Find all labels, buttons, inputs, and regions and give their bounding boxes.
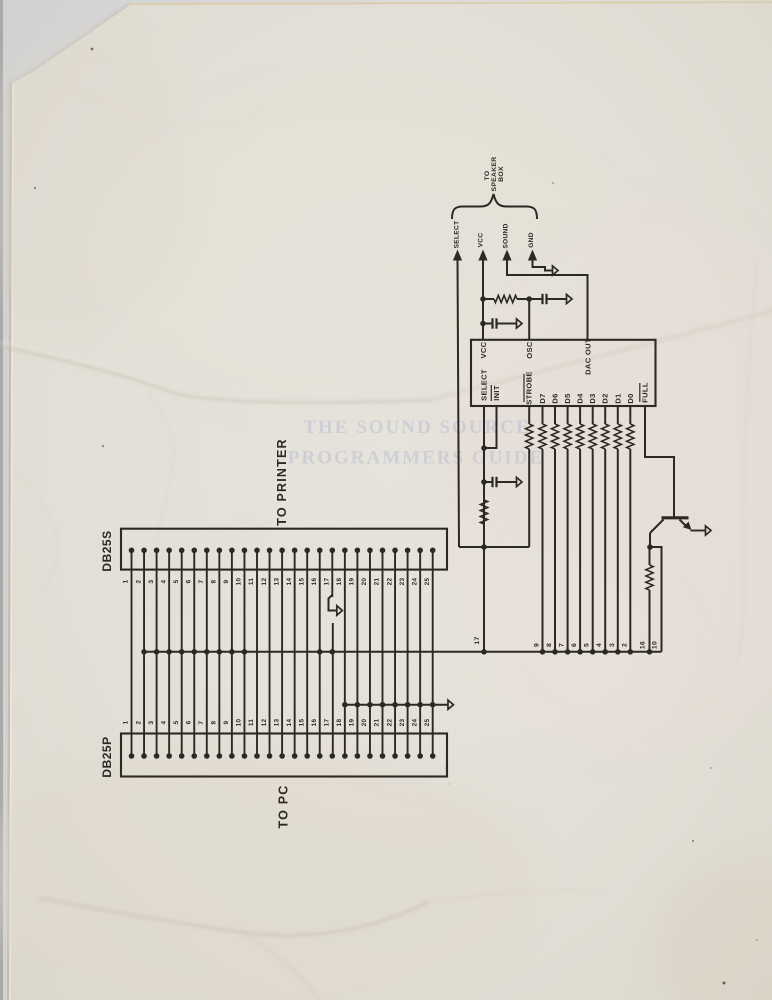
- svg-text:5: 5: [173, 720, 180, 724]
- svg-text:24: 24: [411, 719, 418, 727]
- svg-text:18: 18: [336, 719, 343, 727]
- svg-text:17: 17: [324, 719, 331, 727]
- svg-text:22: 22: [386, 578, 393, 586]
- svg-text:11: 11: [248, 578, 255, 586]
- svg-text:FULL: FULL: [641, 382, 650, 403]
- svg-text:8: 8: [211, 579, 218, 583]
- svg-text:D5: D5: [563, 393, 572, 404]
- svg-text:DAC OUT: DAC OUT: [584, 338, 593, 375]
- svg-text:18: 18: [336, 578, 343, 586]
- svg-text:17: 17: [324, 578, 331, 586]
- svg-text:15: 15: [298, 578, 305, 586]
- svg-text:14: 14: [286, 578, 293, 586]
- svg-text:7: 7: [559, 643, 566, 647]
- svg-text:15: 15: [298, 719, 305, 727]
- svg-text:6: 6: [571, 643, 578, 647]
- svg-text:8: 8: [211, 720, 218, 724]
- svg-text:4: 4: [160, 579, 167, 583]
- svg-text:10: 10: [236, 578, 243, 586]
- svg-text:9: 9: [534, 643, 541, 647]
- svg-text:7: 7: [198, 720, 205, 724]
- svg-text:25: 25: [424, 578, 431, 586]
- svg-text:1: 1: [123, 579, 130, 583]
- svg-text:24: 24: [411, 578, 418, 586]
- svg-text:4: 4: [160, 720, 167, 724]
- svg-text:12: 12: [261, 719, 268, 727]
- svg-text:INIT: INIT: [492, 385, 501, 401]
- svg-text:23: 23: [399, 578, 406, 586]
- svg-text:TO PRINTER: TO PRINTER: [275, 438, 289, 525]
- svg-text:17: 17: [474, 636, 481, 644]
- svg-text:3: 3: [609, 643, 616, 647]
- svg-text:D4: D4: [576, 393, 585, 404]
- svg-text:5: 5: [584, 643, 591, 647]
- svg-text:14: 14: [286, 719, 293, 727]
- svg-text:5: 5: [173, 579, 180, 583]
- svg-text:9: 9: [223, 579, 230, 583]
- svg-text:20: 20: [361, 578, 368, 586]
- svg-text:PROGRAMMERS GUIDE: PROGRAMMERS GUIDE: [288, 448, 544, 469]
- svg-text:19: 19: [349, 578, 356, 586]
- svg-text:25: 25: [424, 719, 431, 727]
- svg-text:23: 23: [399, 719, 406, 727]
- svg-text:6: 6: [185, 579, 192, 583]
- svg-text:TO PC: TO PC: [277, 785, 291, 829]
- svg-text:OSC: OSC: [525, 341, 534, 359]
- svg-text:8: 8: [546, 643, 553, 647]
- svg-text:2: 2: [621, 643, 628, 647]
- svg-text:20: 20: [361, 719, 368, 727]
- svg-text:DB25P: DB25P: [100, 736, 114, 777]
- svg-text:D6: D6: [551, 393, 560, 403]
- svg-text:22: 22: [386, 719, 393, 727]
- svg-text:21: 21: [374, 719, 381, 727]
- svg-text:2: 2: [135, 720, 142, 724]
- svg-text:VCC: VCC: [478, 233, 485, 248]
- svg-text:STROBE: STROBE: [525, 371, 534, 404]
- svg-text:16: 16: [311, 578, 318, 586]
- svg-text:12: 12: [261, 578, 268, 586]
- svg-text:19: 19: [349, 719, 356, 727]
- svg-text:2: 2: [135, 579, 142, 583]
- svg-text:3: 3: [148, 579, 155, 583]
- svg-text:9: 9: [223, 720, 230, 724]
- svg-text:DB25S: DB25S: [100, 530, 114, 571]
- svg-text:21: 21: [374, 578, 381, 586]
- svg-text:1: 1: [123, 720, 130, 724]
- svg-text:4: 4: [596, 643, 603, 647]
- svg-text:6: 6: [185, 720, 192, 724]
- svg-text:3: 3: [148, 720, 155, 724]
- svg-text:D1: D1: [613, 393, 622, 404]
- svg-text:TO: TO: [484, 171, 491, 181]
- svg-text:11: 11: [248, 719, 255, 727]
- svg-text:10: 10: [236, 719, 243, 727]
- svg-text:16: 16: [640, 641, 647, 649]
- svg-text:10: 10: [652, 641, 659, 649]
- svg-text:D3: D3: [588, 393, 597, 403]
- svg-text:GND: GND: [528, 232, 535, 248]
- svg-text:D7: D7: [538, 393, 547, 403]
- svg-text:16: 16: [311, 719, 318, 727]
- svg-text:7: 7: [198, 579, 205, 583]
- svg-text:D0: D0: [626, 393, 635, 403]
- svg-text:BOX: BOX: [498, 166, 505, 182]
- svg-text:SELECT: SELECT: [480, 369, 489, 401]
- svg-text:SELECT: SELECT: [454, 221, 461, 249]
- svg-text:D2: D2: [601, 393, 610, 403]
- svg-text:13: 13: [273, 578, 280, 586]
- svg-text:SPEAKER: SPEAKER: [491, 157, 498, 192]
- svg-text:13: 13: [273, 719, 280, 727]
- svg-text:SOUND: SOUND: [503, 223, 510, 248]
- svg-text:VCC: VCC: [479, 341, 488, 358]
